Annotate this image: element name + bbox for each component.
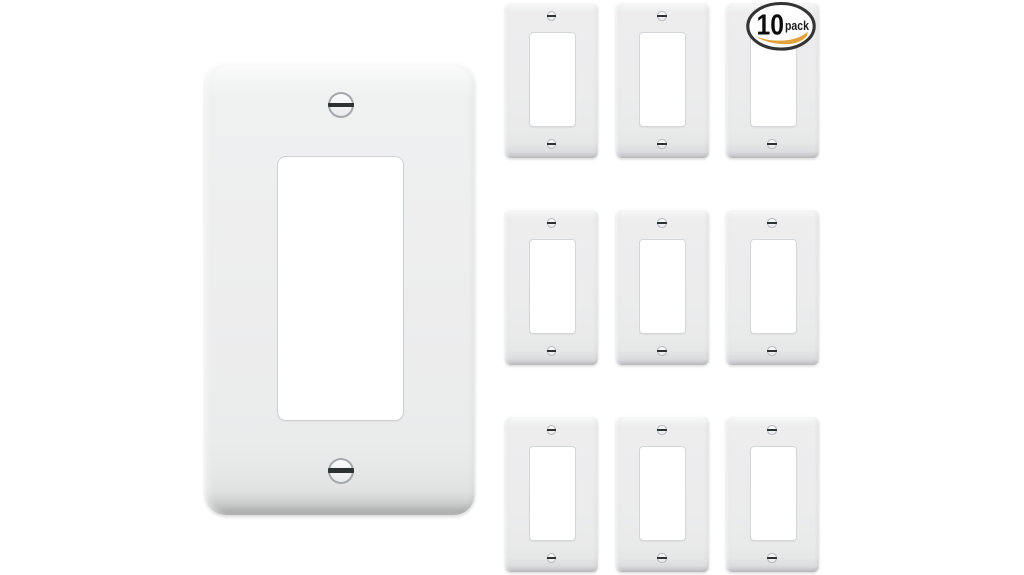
svg-text:10: 10 (757, 9, 785, 41)
svg-text:pack: pack (785, 18, 810, 33)
